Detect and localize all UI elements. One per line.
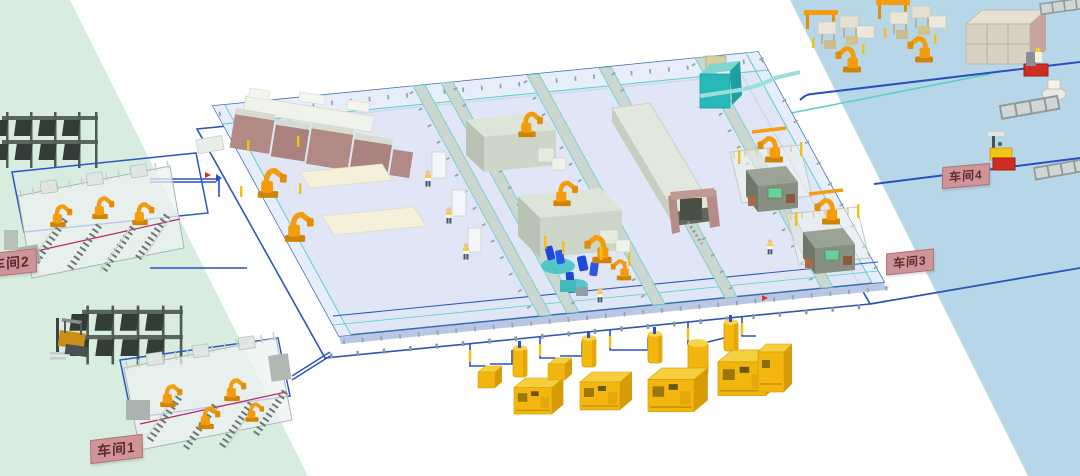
round-table xyxy=(1048,80,1060,89)
main-floor xyxy=(205,52,888,344)
factory-scene xyxy=(0,0,1080,476)
paint-booth xyxy=(700,56,742,108)
workshop-4-label[interactable]: 车间4 xyxy=(942,163,990,189)
compressor-station xyxy=(469,315,792,414)
red-marker xyxy=(205,172,211,178)
connector-line xyxy=(292,352,330,380)
compressor-side-unit xyxy=(758,344,792,392)
transfer-station xyxy=(196,135,224,153)
factory-3d-viewport[interactable]: 车间1 车间2 车间3 车间4 xyxy=(0,0,1080,476)
